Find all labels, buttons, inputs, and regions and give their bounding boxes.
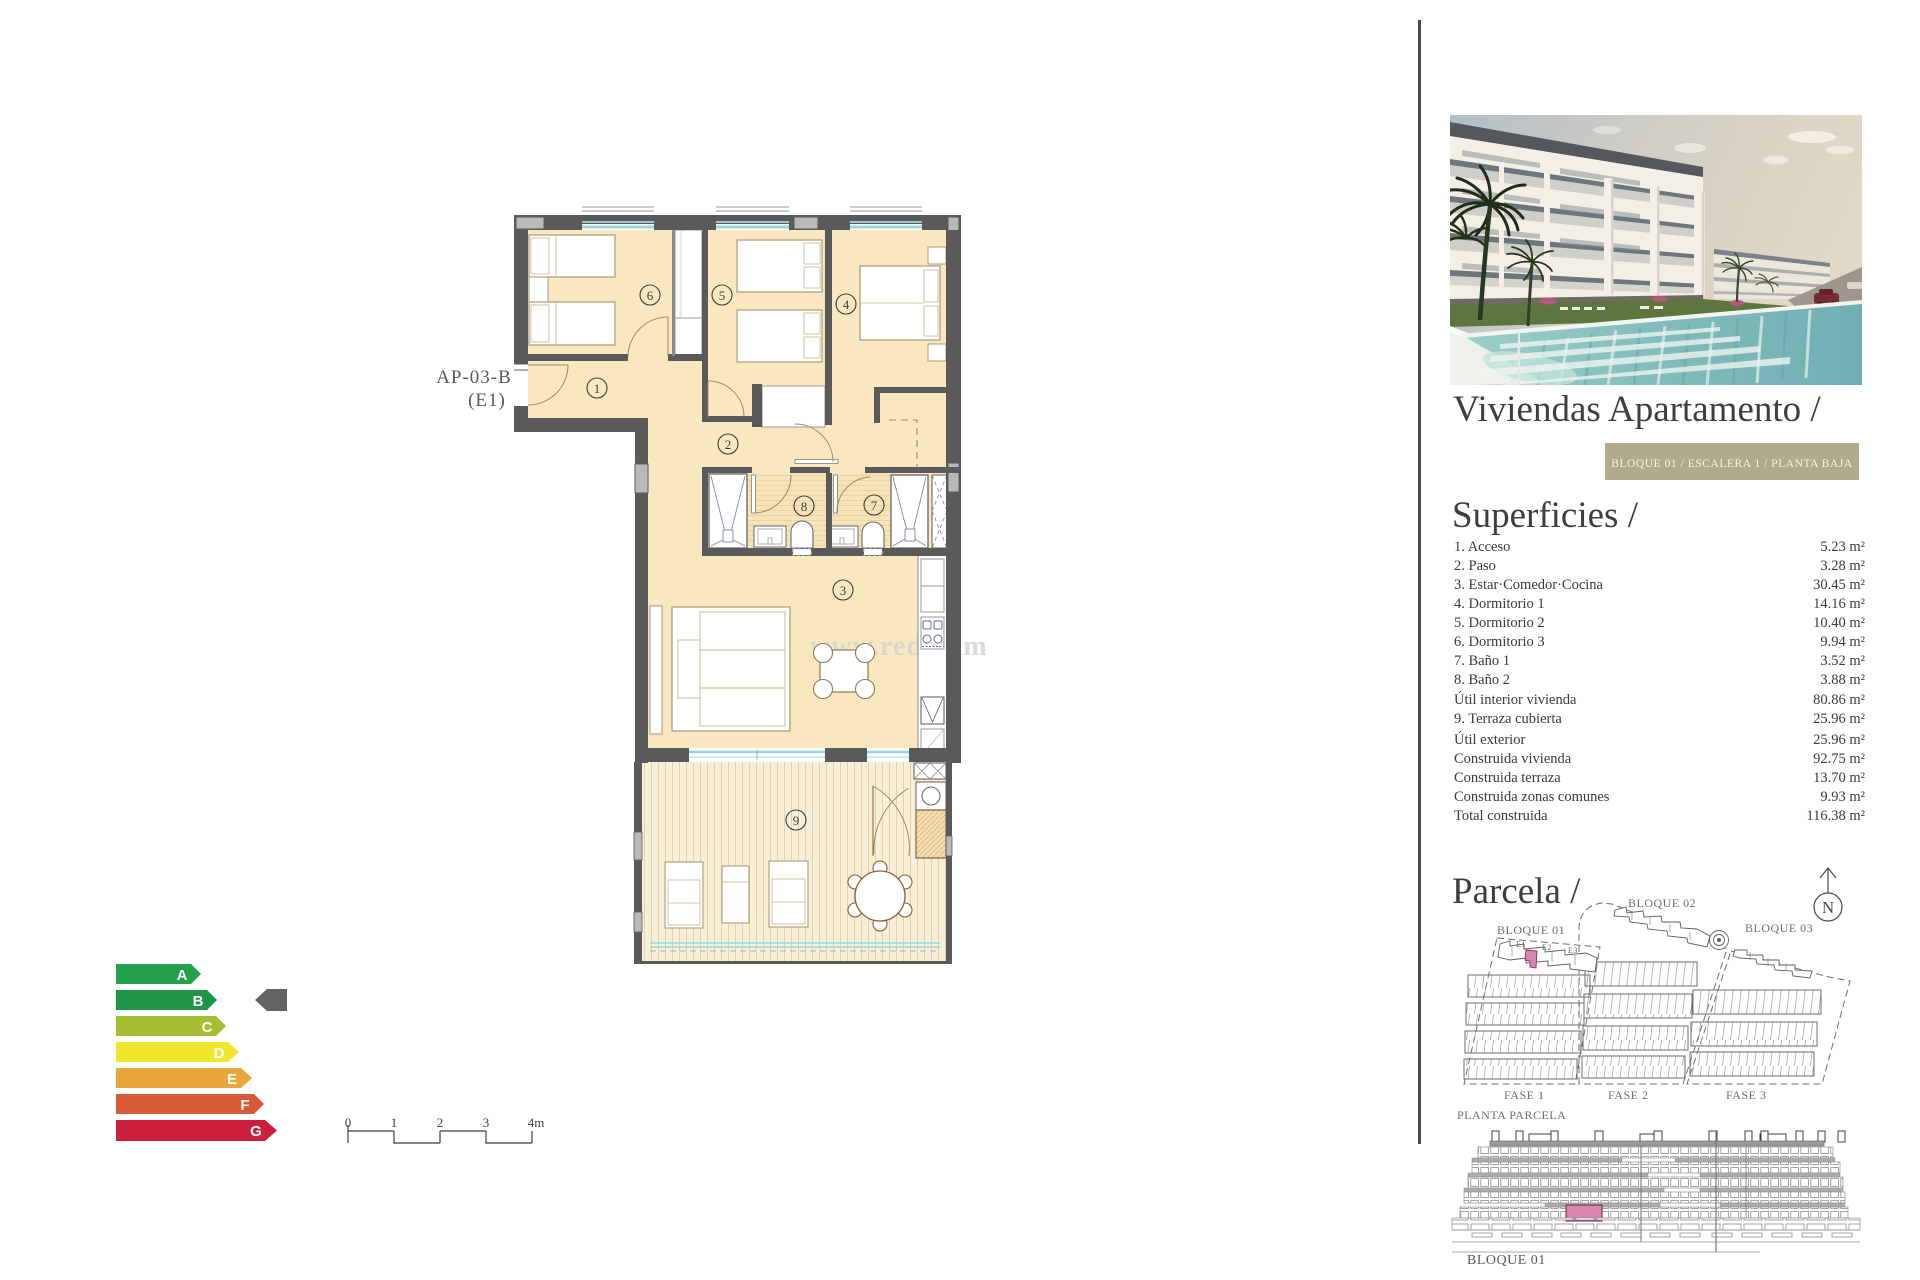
svg-text:3: 3 — [483, 1115, 490, 1130]
svg-text:1: 1 — [594, 381, 601, 396]
svg-text:25.96 m²: 25.96 m² — [1813, 732, 1866, 748]
svg-text:BLOQUE 01 / ESCALERA 1 / PLANT: BLOQUE 01 / ESCALERA 1 / PLANTA BAJA — [1611, 458, 1853, 470]
svg-text:Construida zonas comunes: Construida zonas comunes — [1454, 789, 1610, 805]
svg-text:3.88 m²: 3.88 m² — [1820, 672, 1865, 688]
svg-text:30.45 m²: 30.45 m² — [1813, 577, 1866, 593]
svg-text:PLANTA PARCELA: PLANTA PARCELA — [1457, 1108, 1566, 1122]
svg-text:BLOQUE 01: BLOQUE 01 — [1497, 923, 1565, 937]
svg-text:1. Acceso: 1. Acceso — [1454, 539, 1510, 555]
svg-text:(E1): (E1) — [468, 390, 506, 411]
svg-text:5: 5 — [719, 288, 726, 303]
svg-text:FASE 2: FASE 2 — [1608, 1088, 1648, 1102]
svg-text:E2: E2 — [1542, 943, 1552, 952]
svg-text:A: A — [177, 967, 188, 984]
svg-text:G: G — [250, 1123, 262, 1140]
svg-text:10.40 m²: 10.40 m² — [1813, 615, 1866, 631]
svg-text:7. Baño 1: 7. Baño 1 — [1454, 653, 1510, 669]
svg-text:E: E — [227, 1071, 237, 1088]
svg-text:25.96 m²: 25.96 m² — [1813, 711, 1866, 727]
svg-text:FASE 1: FASE 1 — [1504, 1088, 1544, 1102]
svg-text:Útil interior vivienda: Útil interior vivienda — [1454, 691, 1577, 708]
svg-text:Parcela /: Parcela / — [1452, 871, 1581, 912]
svg-text:AP-03-B: AP-03-B — [436, 367, 512, 388]
svg-text:13.70 m²: 13.70 m² — [1813, 770, 1866, 786]
svg-text:14.16 m²: 14.16 m² — [1813, 596, 1866, 612]
svg-text:92.75 m²: 92.75 m² — [1813, 751, 1866, 767]
svg-text:116.38 m²: 116.38 m² — [1806, 808, 1865, 824]
svg-text:Útil exterior: Útil exterior — [1454, 731, 1525, 748]
svg-text:6. Dormitorio 3: 6. Dormitorio 3 — [1454, 634, 1545, 650]
svg-text:7: 7 — [871, 498, 878, 513]
svg-text:5. Dormitorio 2: 5. Dormitorio 2 — [1454, 615, 1545, 631]
svg-text:1: 1 — [391, 1115, 398, 1130]
svg-text:BLOQUE 02: BLOQUE 02 — [1628, 896, 1696, 910]
svg-text:E1: E1 — [1516, 940, 1526, 949]
svg-text:F: F — [240, 1097, 249, 1114]
svg-text:N: N — [1822, 898, 1834, 917]
svg-text:3.52 m²: 3.52 m² — [1820, 653, 1865, 669]
svg-text:3. Estar·Comedor·Cocina: 3. Estar·Comedor·Cocina — [1454, 577, 1604, 593]
svg-text:Total construida: Total construida — [1454, 808, 1548, 824]
svg-text:BLOQUE 03: BLOQUE 03 — [1745, 921, 1813, 935]
svg-text:C: C — [202, 1019, 213, 1036]
svg-text:2: 2 — [437, 1115, 444, 1130]
svg-text:BLOQUE 01: BLOQUE 01 — [1467, 1253, 1546, 1268]
svg-text:3.28 m²: 3.28 m² — [1820, 558, 1865, 574]
svg-text:9. Terraza cubierta: 9. Terraza cubierta — [1454, 711, 1562, 727]
svg-text:4. Dormitorio 1: 4. Dormitorio 1 — [1454, 596, 1545, 612]
svg-text:FASE 3: FASE 3 — [1726, 1088, 1766, 1102]
svg-text:8. Baño 2: 8. Baño 2 — [1454, 672, 1510, 688]
svg-text:80.86 m²: 80.86 m² — [1813, 692, 1866, 708]
svg-text:6: 6 — [647, 288, 654, 303]
svg-text:Superficies /: Superficies / — [1452, 495, 1639, 536]
svg-text:Construida vivienda: Construida vivienda — [1454, 751, 1572, 767]
svg-text:5.23 m²: 5.23 m² — [1820, 539, 1865, 555]
svg-text:4m: 4m — [528, 1115, 545, 1130]
svg-text:B: B — [193, 993, 204, 1010]
svg-text:4: 4 — [843, 297, 850, 312]
svg-text:Viviendas Apartamento /: Viviendas Apartamento / — [1453, 389, 1821, 430]
svg-text:9.93 m²: 9.93 m² — [1820, 789, 1865, 805]
svg-text:Construida terraza: Construida terraza — [1454, 770, 1561, 786]
svg-text:9: 9 — [793, 813, 800, 828]
svg-text:9.94 m²: 9.94 m² — [1820, 634, 1865, 650]
svg-text:2. Paso: 2. Paso — [1454, 558, 1496, 574]
svg-text:3: 3 — [840, 583, 847, 598]
svg-text:D: D — [214, 1045, 225, 1062]
svg-text:2: 2 — [725, 437, 732, 452]
svg-text:8: 8 — [801, 499, 808, 514]
svg-text:E3: E3 — [1568, 946, 1578, 955]
